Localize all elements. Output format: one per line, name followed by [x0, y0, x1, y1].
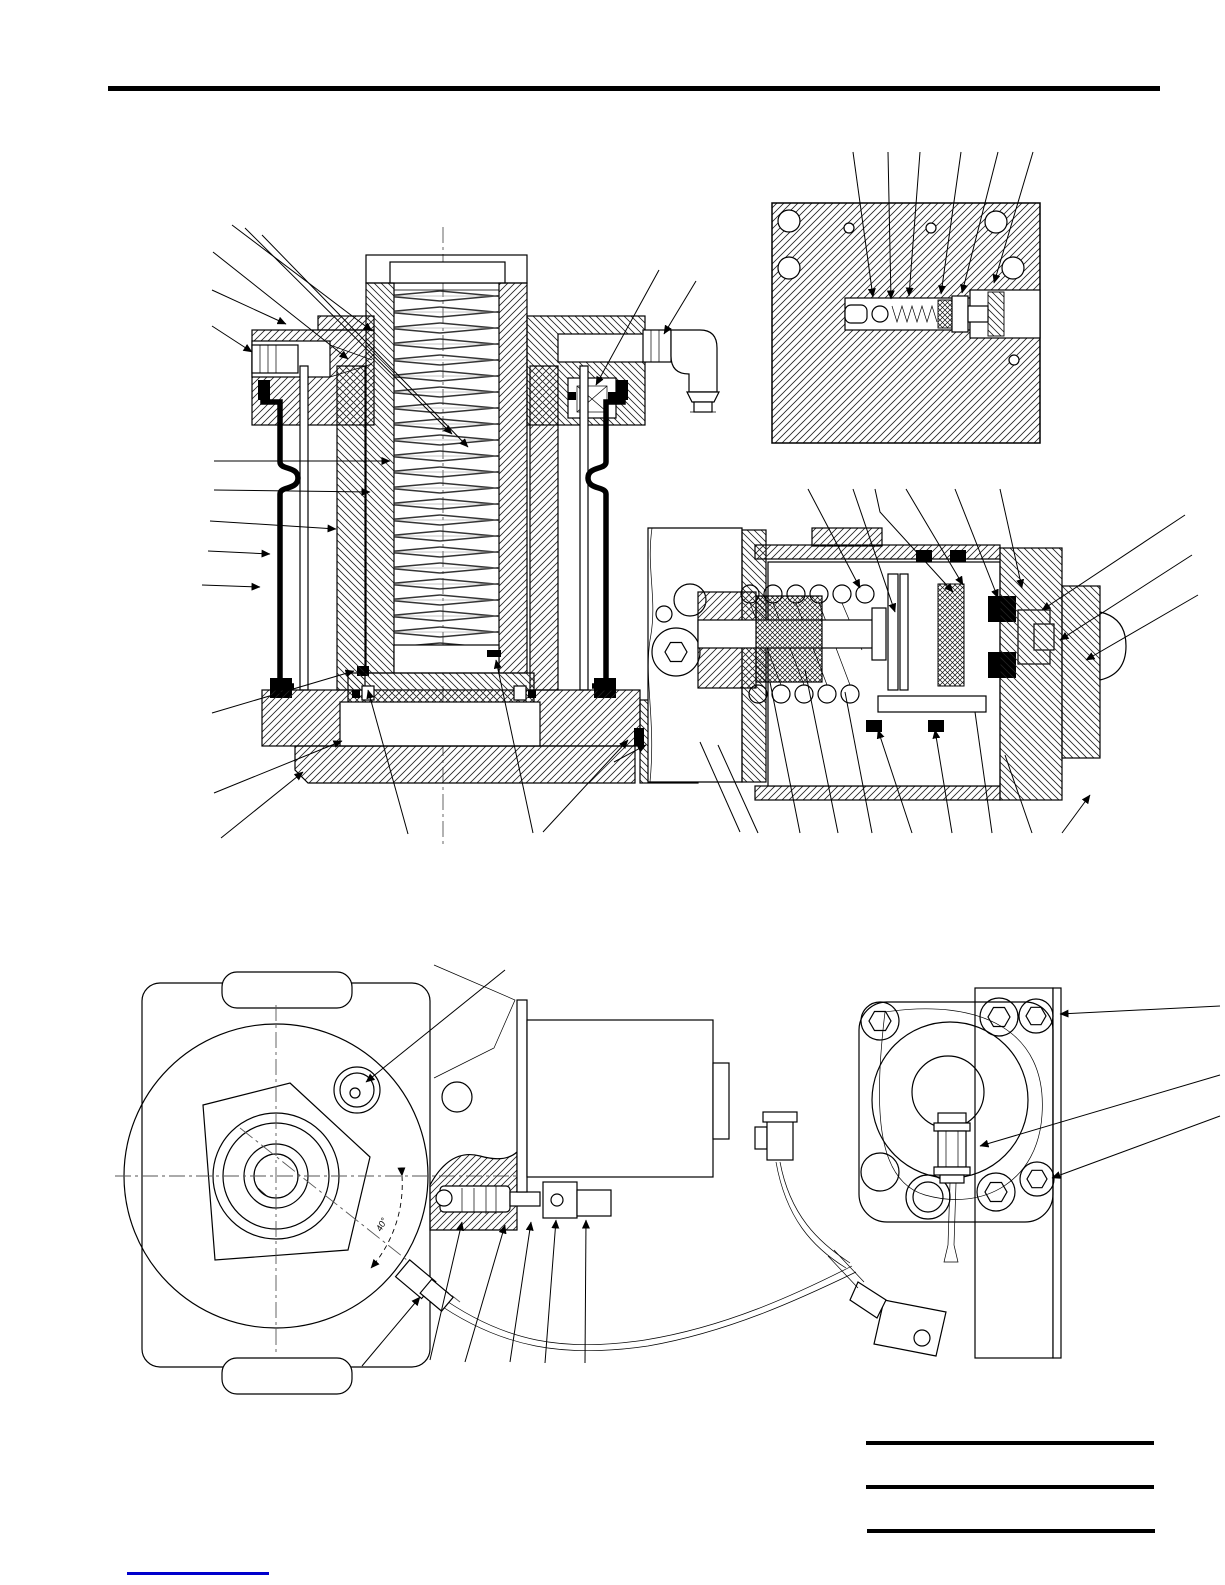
- reference-line: [866, 1441, 1154, 1445]
- angle-dimension: 40°: [371, 1176, 402, 1268]
- figure-valve-detail: [772, 152, 1040, 443]
- hose-and-fitting: [396, 1260, 856, 1351]
- bracket-plate: [975, 988, 1053, 1358]
- tee-fitting: [755, 1112, 797, 1160]
- angle-dimension-label: 40°: [374, 1216, 389, 1233]
- lobed-mounting-plate: [142, 972, 430, 1394]
- top-rule: [108, 86, 1160, 91]
- screw-column: [357, 255, 527, 676]
- figure-bellows-actuator-section: [202, 225, 719, 848]
- gauge-port: [334, 1067, 380, 1113]
- check-valve: [568, 378, 616, 418]
- figure-actuator-front-view: 40°: [115, 965, 856, 1394]
- reference-line: [867, 1529, 1155, 1533]
- port-plug: [252, 345, 298, 373]
- bellows-left: [258, 380, 298, 698]
- base-block: [262, 673, 698, 783]
- figure-spring-piston-assembly: [614, 489, 1198, 833]
- lead-screw-threads: [394, 290, 499, 672]
- figure-mounting-flange-view: [828, 988, 1220, 1358]
- tee-tube: [776, 1162, 850, 1268]
- bellows-right: [588, 380, 628, 698]
- footer-link-underline[interactable]: [127, 1572, 269, 1575]
- manual-page: 40°: [0, 0, 1225, 1585]
- reference-lines: [866, 1441, 1155, 1533]
- reference-line: [866, 1485, 1154, 1489]
- page-canvas: 40°: [0, 0, 1225, 1585]
- end-cap: [1000, 548, 1126, 800]
- cable-terminal: [828, 1250, 946, 1356]
- elbow-fitting: [643, 330, 719, 412]
